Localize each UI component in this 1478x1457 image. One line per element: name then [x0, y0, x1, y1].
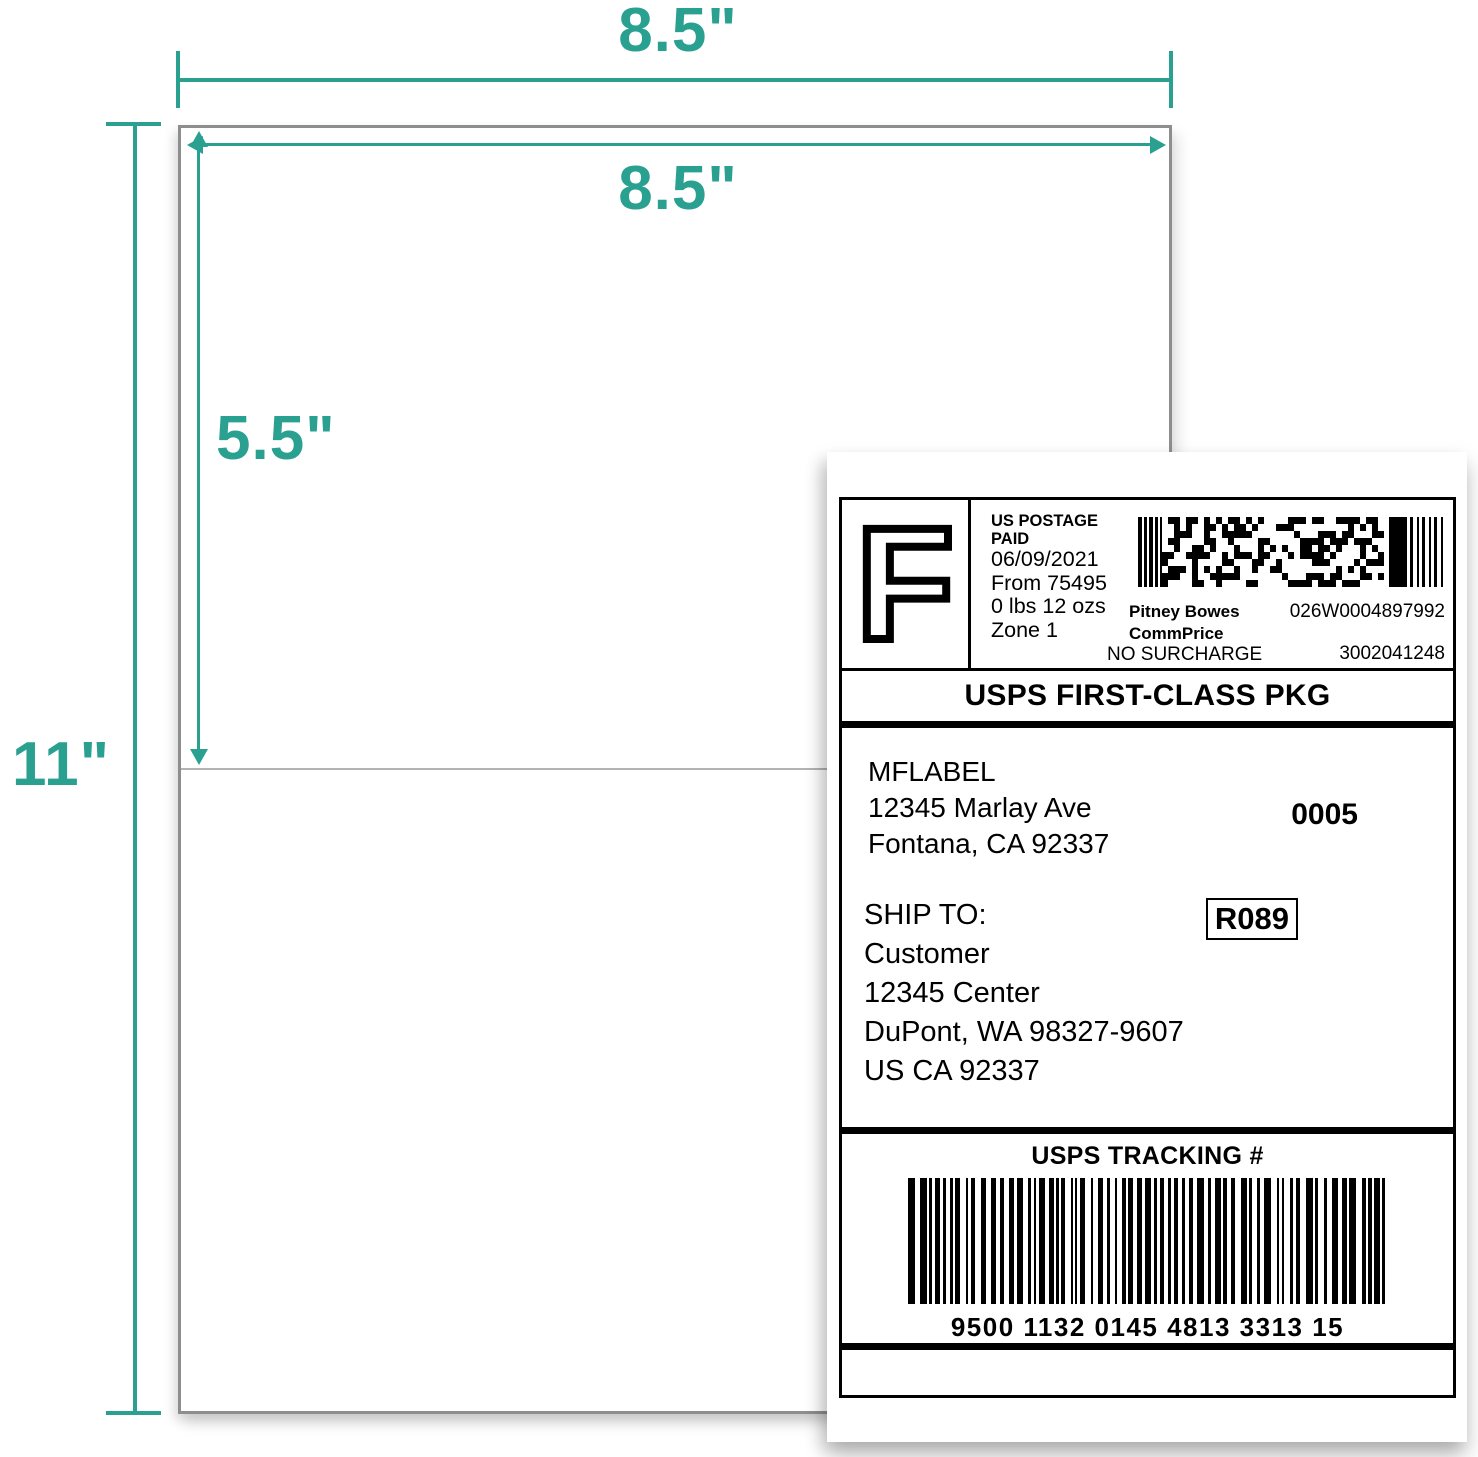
matrix-barcode-start [1138, 517, 1162, 587]
dimension-tick [106, 122, 161, 126]
zone-code-badge: R089 [1206, 898, 1298, 940]
postage-stamp-cell: F [842, 500, 971, 668]
dimension-tick [176, 51, 180, 108]
tracking-heading: USPS TRACKING # [842, 1142, 1453, 1171]
label-height-value: 5.5" [216, 408, 336, 470]
meter-surcharge: NO SURCHARGE [1107, 644, 1262, 665]
sender-address: MFLABEL 12345 Marlay Ave Fontana, CA 923… [868, 754, 1453, 862]
recipient-name: Customer [864, 935, 1184, 974]
postage-f-stamp-icon: F [856, 509, 954, 659]
postage-header-section: F US POSTAGE PAID 06/09/2021 From 75495 … [842, 500, 1453, 671]
meter-number: 026W0004897992 [1290, 601, 1445, 623]
meter-carrier: Pitney Bowes [1129, 601, 1240, 623]
ship-to-heading: SHIP TO: [864, 896, 1184, 935]
matrix-barcode-end [1407, 517, 1443, 587]
label-width-arrow [203, 143, 1150, 146]
shipping-label: F US POSTAGE PAID 06/09/2021 From 75495 … [839, 497, 1456, 1398]
tracking-number: 9500 1132 0145 4813 3313 15 [842, 1312, 1453, 1343]
sender-name: MFLABEL [868, 754, 1453, 790]
tracking-barcode [904, 1178, 1392, 1304]
product-diagram: 8.5" 11" 8.5" 5.5" F US POSTAGE PAID 06/… [0, 0, 1478, 1457]
dimension-tick [106, 1411, 161, 1415]
postage-info-cell: US POSTAGE PAID 06/09/2021 From 75495 0 … [971, 500, 1453, 668]
sender-city: Fontana, CA 92337 [868, 826, 1453, 862]
label-width-value: 8.5" [578, 158, 778, 220]
sheet-height-value: 11" [0, 734, 122, 796]
matrix-barcode [1138, 517, 1443, 587]
sheet-width-value: 8.5" [578, 0, 778, 62]
label-height-arrow [197, 147, 200, 749]
dimension-tick [1169, 51, 1173, 108]
ship-to-address: SHIP TO: Customer 12345 Center DuPont, W… [864, 896, 1184, 1091]
sheet-width-dimension-line [178, 78, 1172, 82]
meter-rate-code: CommPrice [1129, 624, 1262, 644]
batch-reference: 0005 [1291, 798, 1358, 832]
sender-street: 12345 Marlay Ave [868, 790, 1453, 826]
tracking-section: USPS TRACKING # 9500 1132 0145 4813 3313… [842, 1134, 1453, 1350]
recipient-street: 12345 Center [864, 974, 1184, 1013]
meter-info: Pitney Bowes 026W0004897992 CommPrice NO… [1129, 601, 1445, 665]
matrix-barcode-solid-bar [1389, 517, 1407, 587]
meter-account-number: 3002041248 [1339, 643, 1445, 665]
recipient-country: US CA 92337 [864, 1052, 1184, 1091]
sheet-height-dimension-line [133, 124, 137, 1415]
recipient-city: DuPont, WA 98327-9607 [864, 1013, 1184, 1052]
bottom-blank-section [842, 1350, 1453, 1395]
address-section: MFLABEL 12345 Marlay Ave Fontana, CA 923… [842, 728, 1453, 1134]
matrix-noise [1162, 517, 1389, 587]
shipping-label-card: F US POSTAGE PAID 06/09/2021 From 75495 … [827, 452, 1467, 1442]
service-banner: USPS FIRST-CLASS PKG [842, 671, 1453, 728]
